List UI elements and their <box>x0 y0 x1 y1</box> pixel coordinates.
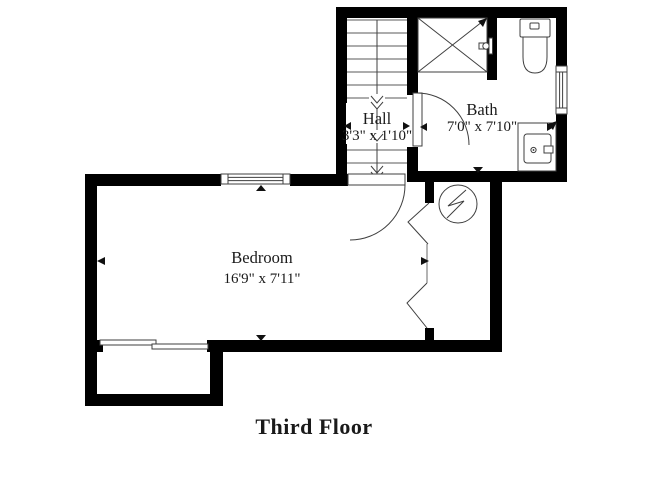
bath-label: Bath <box>466 100 498 119</box>
wall-bedroom-bottom <box>207 340 502 352</box>
wall-bumpout-bottom <box>85 394 223 406</box>
wall-bumpout-right <box>210 340 223 406</box>
floorplan-svg: Hall 3'3" x 1'10" Bath 7'0" x 7'10" Bedr… <box>0 0 650 488</box>
bifold-door-upper-icon <box>408 203 429 244</box>
shower-valve-bar <box>489 38 493 54</box>
wall-bath-right-upper <box>556 7 567 66</box>
bedroom-label: Bedroom <box>231 248 293 267</box>
wall-closet-bottom-stub <box>425 328 434 340</box>
sink-drain-dot <box>533 149 535 151</box>
light-fixture-symbol <box>439 185 477 223</box>
bedroom-door-leaf <box>348 174 405 185</box>
dimension-arrows <box>97 122 554 341</box>
floor-plan: Hall 3'3" x 1'10" Bath 7'0" x 7'10" Bedr… <box>0 0 650 488</box>
sliding-door-panel-right <box>152 344 208 349</box>
toilet-bowl-icon <box>523 37 547 73</box>
wall-bedroom-left <box>85 174 97 406</box>
wall-hall-bath-lower <box>407 147 418 171</box>
bath-door-leaf <box>413 93 422 146</box>
wall-bedroom-top-left <box>85 174 221 186</box>
bedroom-width-arrow-right <box>421 257 429 265</box>
shower-valve-knob <box>483 43 489 49</box>
bedroom-dimensions: 16'9" x 7'11" <box>223 271 300 287</box>
bedroom-door-swing-arc <box>350 185 405 240</box>
wall-bath-bottom <box>407 171 567 182</box>
bedroom-depth-arrow-top <box>256 185 266 191</box>
wall-bedroom-top-right <box>290 174 348 186</box>
bedroom-window-icon <box>221 174 290 184</box>
page-title: Third Floor <box>255 414 372 439</box>
sliding-door <box>100 340 208 349</box>
bedroom-width-arrow-left <box>97 257 105 265</box>
bifold-door-lower-icon <box>407 283 427 328</box>
wall-top-structure-top <box>336 7 567 18</box>
bedroom-doors <box>348 174 477 328</box>
toilet-flush-button <box>530 23 539 29</box>
wall-right <box>490 171 502 352</box>
bath-fixtures <box>413 18 557 171</box>
wall-top-structure-left <box>336 7 347 182</box>
hall-label: Hall <box>363 109 392 128</box>
bath-window-icon <box>556 66 567 114</box>
labels: Hall 3'3" x 1'10" Bath 7'0" x 7'10" Bedr… <box>223 100 517 439</box>
hall-dimensions: 3'3" x 1'10" <box>342 128 412 144</box>
sliding-door-panel-left <box>100 340 156 345</box>
wall-closet-top-stub <box>425 182 434 203</box>
bath-dimensions: 7'0" x 7'10" <box>447 119 517 135</box>
staircase <box>346 20 407 179</box>
sink-faucet-icon <box>544 146 553 153</box>
wall-hall-bath-upper <box>407 18 418 95</box>
